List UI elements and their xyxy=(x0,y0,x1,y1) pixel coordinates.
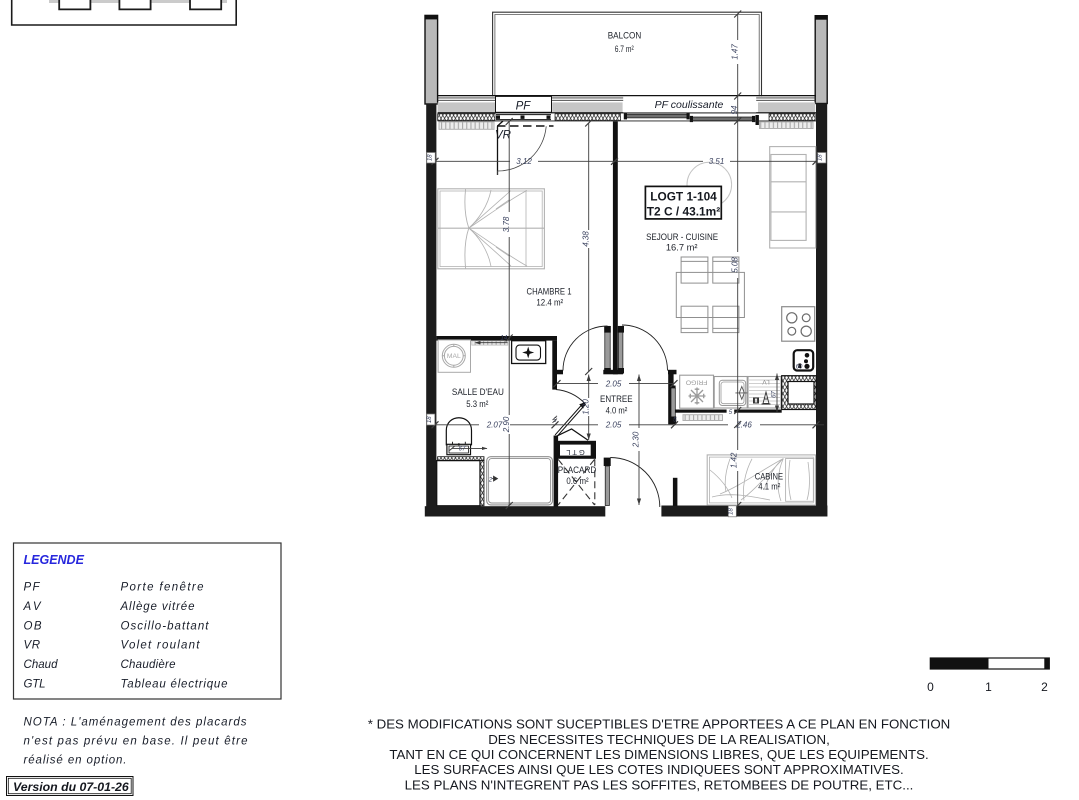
svg-text:PF coulissante: PF coulissante xyxy=(655,99,724,111)
svg-text:CHAMBRE 1: CHAMBRE 1 xyxy=(527,286,572,297)
svg-text:SALLE D'EAU: SALLE D'EAU xyxy=(452,387,504,398)
svg-text:TANT EN CE QUI CONCERNENT LES: TANT EN CE QUI CONCERNENT LES DIMENSIONS… xyxy=(389,747,928,762)
svg-text:18: 18 xyxy=(427,154,433,161)
svg-text:2.05: 2.05 xyxy=(605,421,622,430)
svg-text:67: 67 xyxy=(459,446,466,452)
svg-text:3.51: 3.51 xyxy=(709,157,725,166)
svg-text:G T L: G T L xyxy=(566,448,584,457)
svg-text:0.6 m²: 0.6 m² xyxy=(566,476,588,487)
svg-text:2.46: 2.46 xyxy=(735,420,752,429)
svg-text:2.05: 2.05 xyxy=(605,379,622,388)
svg-text:VR: VR xyxy=(24,640,41,652)
svg-text:4.0 m²: 4.0 m² xyxy=(606,406,628,417)
svg-text:2.90: 2.90 xyxy=(502,416,511,433)
svg-text:67: 67 xyxy=(772,391,778,398)
svg-text:NOTA : L'aménagement des placa: NOTA : L'aménagement des placards xyxy=(24,717,247,729)
svg-text:LEGENDE: LEGENDE xyxy=(24,553,85,567)
svg-text:PLACARD: PLACARD xyxy=(558,465,597,476)
svg-text:LES SURFACES AINSI QUE LES COT: LES SURFACES AINSI QUE LES COTES INDIQUE… xyxy=(414,762,903,777)
svg-text:PF: PF xyxy=(24,582,41,594)
svg-text:ENTREE: ENTREE xyxy=(600,394,633,405)
svg-text:5.08: 5.08 xyxy=(730,257,739,273)
svg-text:1.47: 1.47 xyxy=(731,44,740,60)
svg-text:FRIGO: FRIGO xyxy=(686,379,708,386)
svg-text:LES PLANS N'INTEGRENT PAS LES: LES PLANS N'INTEGRENT PAS LES SOFFITES, … xyxy=(405,778,914,793)
svg-text:Tableau électrique: Tableau électrique xyxy=(121,678,228,690)
svg-text:3.78: 3.78 xyxy=(502,216,511,232)
svg-text:6.7 m²: 6.7 m² xyxy=(615,44,634,55)
svg-text:Volet roulant: Volet roulant xyxy=(121,640,201,652)
svg-text:14: 14 xyxy=(501,336,508,342)
svg-text:* DES MODIFICATIONS SONT SUCEP: * DES MODIFICATIONS SONT SUCEPTIBLES D'E… xyxy=(368,717,951,732)
svg-text:T2 C / 43.1m²: T2 C / 43.1m² xyxy=(647,205,721,219)
svg-text:SEJOUR - CUISINE: SEJOUR - CUISINE xyxy=(646,232,718,243)
svg-text:Allège vitrée: Allège vitrée xyxy=(120,601,195,613)
svg-text:2.07: 2.07 xyxy=(486,421,503,430)
svg-text:5.3 m²: 5.3 m² xyxy=(466,399,488,410)
svg-text:DES NECESSITES TECHNIQUES DE L: DES NECESSITES TECHNIQUES DE LA REALISAT… xyxy=(488,732,830,747)
svg-text:18: 18 xyxy=(818,154,824,161)
svg-text:LV: LV xyxy=(762,378,770,385)
svg-text:2: 2 xyxy=(488,478,493,484)
svg-text:3.12: 3.12 xyxy=(516,157,532,166)
svg-text:n'est pas prévu en base. Il pe: n'est pas prévu en base. Il peut être xyxy=(24,736,248,748)
svg-text:réalisé en option.: réalisé en option. xyxy=(24,755,127,767)
svg-text:1.20: 1.20 xyxy=(581,399,590,415)
svg-text:60: 60 xyxy=(796,365,803,371)
svg-text:4.1 m²: 4.1 m² xyxy=(758,482,780,493)
svg-text:Version du 07-01-26: Version du 07-01-26 xyxy=(13,780,129,794)
svg-text:16.7 m²: 16.7 m² xyxy=(666,242,698,253)
svg-text:BALCON: BALCON xyxy=(608,30,642,41)
svg-text:1.42: 1.42 xyxy=(730,452,739,468)
svg-text:1: 1 xyxy=(985,680,992,694)
svg-text:94: 94 xyxy=(730,105,739,114)
svg-text:GTL: GTL xyxy=(24,678,46,690)
svg-text:Oscillo-battant: Oscillo-battant xyxy=(121,620,210,632)
svg-text:2.30: 2.30 xyxy=(632,431,641,448)
svg-text:18: 18 xyxy=(728,508,734,515)
svg-text:2: 2 xyxy=(1041,680,1048,694)
svg-text:AV: AV xyxy=(23,601,42,613)
svg-text:MAL: MAL xyxy=(447,353,461,360)
svg-text:Chaud: Chaud xyxy=(24,659,59,671)
svg-text:4.38: 4.38 xyxy=(581,231,590,247)
svg-text:Chaudière: Chaudière xyxy=(121,659,176,671)
svg-text:0: 0 xyxy=(927,680,934,694)
svg-text:18: 18 xyxy=(427,416,433,423)
svg-text:LOGT 1-104: LOGT 1-104 xyxy=(650,190,717,204)
svg-text:Porte fenêtre: Porte fenêtre xyxy=(121,582,204,594)
svg-text:PF: PF xyxy=(516,101,532,113)
svg-text:12.4 m²: 12.4 m² xyxy=(536,298,563,309)
